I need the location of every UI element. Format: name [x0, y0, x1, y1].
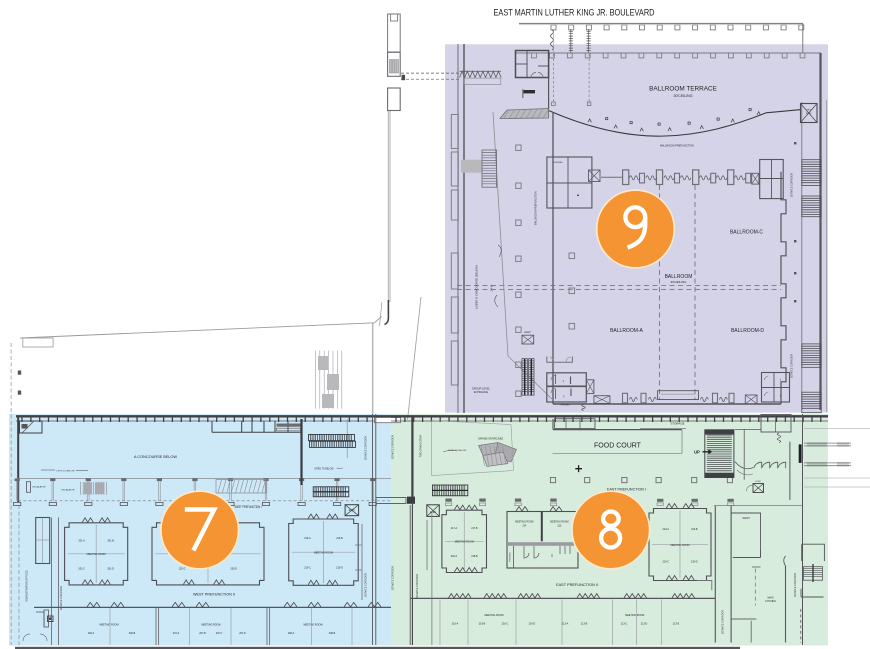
svg-text:BALLROOM-C: BALLROOM-C [730, 230, 763, 236]
svg-text:LIFTS TO BELOW: LIFTS TO BELOW [57, 471, 76, 473]
svg-text:213-B: 213-B [581, 623, 588, 626]
svg-text:SERVICE CORRIDOR: SERVICE CORRIDOR [416, 574, 419, 598]
svg-text:ELEV: ELEV [349, 509, 356, 512]
svg-text:GROUP LEVEL: GROUP LEVEL [472, 387, 491, 391]
svg-text:WASH: WASH [742, 517, 749, 520]
svg-text:MEETING ROOM: MEETING ROOM [314, 551, 333, 554]
svg-text:STORAGE: STORAGE [671, 422, 685, 425]
svg-text:213-E: 213-E [673, 623, 680, 626]
svg-text:30′CEILING: 30′CEILING [673, 94, 692, 98]
svg-text:BALLROOM PREFUNCTION: BALLROOM PREFUNCTION [660, 143, 694, 147]
svg-text:♀: ♀ [562, 394, 565, 399]
svg-text:A CONCOURSE BELOW: A CONCOURSE BELOW [134, 455, 178, 459]
svg-text:MEETING ROOM: MEETING ROOM [202, 624, 221, 627]
svg-text:219-C: 219-C [662, 561, 669, 564]
svg-text:MEETING ROOM: MEETING ROOM [550, 522, 568, 524]
svg-text:♀: ♀ [779, 393, 782, 398]
svg-text:KITCHEN: KITCHEN [765, 600, 776, 603]
svg-text:ESCALATOR: ESCALATOR [32, 486, 45, 489]
svg-text:♀: ♀ [550, 554, 555, 560]
svg-text:MEETING ROOM: MEETING ROOM [671, 544, 690, 547]
svg-text:UP: UP [694, 449, 700, 454]
svg-text:SERVICE CORRIDOR: SERVICE CORRIDOR [791, 173, 794, 197]
svg-text:202-D: 202-D [231, 567, 238, 570]
svg-text:210-A: 210-A [304, 537, 311, 540]
svg-text:ELEV: ELEV [430, 511, 437, 514]
svg-text:MEETING ROOM: MEETING ROOM [515, 522, 533, 524]
svg-text:216-A: 216-A [452, 623, 459, 626]
svg-text:WEST PREFUNCTION II: WEST PREFUNCTION II [193, 593, 235, 597]
svg-text:WEST PREFUNCTION I: WEST PREFUNCTION I [235, 505, 262, 509]
svg-text:ADMINISTRATION OFFICES: ADMINISTRATION OFFICES [26, 570, 29, 602]
svg-text:206-B: 206-B [129, 632, 136, 635]
svg-text:216-C: 216-C [502, 623, 509, 626]
svg-text:SERVICE CORRIDOR: SERVICE CORRIDOR [791, 354, 794, 378]
svg-text:201-A: 201-A [78, 539, 85, 542]
svg-text:MEETING ROOM: MEETING ROOM [455, 541, 474, 544]
svg-text:208-B: 208-B [329, 632, 336, 635]
svg-text:207-C: 207-C [216, 632, 223, 635]
svg-text:207-A: 207-A [173, 632, 180, 635]
svg-text:207-D: 207-D [239, 632, 246, 635]
svg-text:217-A: 217-A [451, 527, 458, 530]
svg-text:24′-8″: 24′-8″ [490, 284, 494, 291]
svg-text:210-C: 210-C [304, 567, 311, 570]
svg-text:GRAND STAIRCASE: GRAND STAIRCASE [478, 436, 503, 440]
svg-text:MEETING ROOM: MEETING ROOM [304, 624, 323, 627]
svg-text:SERVICE CORRIDOR: SERVICE CORRIDOR [722, 610, 725, 634]
svg-text:▲: ▲ [576, 193, 580, 197]
svg-text:FRT: FRT [807, 110, 812, 112]
svg-text:216-D: 216-D [529, 623, 536, 626]
svg-text:202-C: 202-C [179, 567, 186, 570]
svg-text:216-B: 216-B [479, 623, 486, 626]
svg-text:ENTRANCE: ENTRANCE [474, 390, 489, 394]
svg-text:BALLROOM: BALLROOM [665, 274, 693, 280]
svg-text:MEETING ROOM: MEETING ROOM [625, 614, 644, 617]
svg-text:ESCALATOR: ESCALATOR [61, 488, 74, 491]
svg-text:219-B: 219-B [691, 528, 698, 531]
svg-text:BALLROOM-D: BALLROOM-D [731, 328, 764, 334]
svg-text:OPEN TO BELOW: OPEN TO BELOW [314, 468, 334, 470]
svg-text:208-A: 208-A [288, 632, 295, 635]
svg-text:EAST MARTIN LUTHER KING JR. BO: EAST MARTIN LUTHER KING JR. BOULEVARD [494, 8, 655, 18]
svg-text:30′CEILING: 30′CEILING [671, 280, 688, 284]
svg-text:ELEV: ELEV [756, 481, 762, 483]
svg-text:SERVICE CORRIDOR: SERVICE CORRIDOR [391, 435, 394, 459]
svg-text:SERVICE CORRIDOR: SERVICE CORRIDOR [794, 573, 797, 597]
svg-text:206-A: 206-A [88, 632, 95, 635]
svg-text:PHONES: PHONES [553, 162, 563, 164]
svg-text:TWO GRAND STAIR: TWO GRAND STAIR [420, 435, 423, 458]
svg-text:217-B: 217-B [471, 527, 478, 530]
svg-text:207-B: 207-B [199, 632, 206, 635]
svg-text:PHONES: PHONES [560, 405, 570, 407]
svg-text:219-D: 219-D [691, 561, 698, 564]
svg-text:SERVICE CORRIDOR: SERVICE CORRIDOR [391, 566, 394, 590]
svg-text:BALLROOM-A: BALLROOM-A [610, 328, 643, 334]
svg-text:218-A: 218-A [451, 555, 458, 558]
svg-text:LOBBY D CONCOURSE (BELOW): LOBBY D CONCOURSE (BELOW) [475, 265, 479, 309]
svg-text:218-B: 218-B [471, 555, 478, 558]
svg-text:BALLROOM TERRACE: BALLROOM TERRACE [649, 86, 717, 93]
svg-text:SERVICE CORRIDOR: SERVICE CORRIDOR [60, 586, 63, 610]
svg-text:201-C: 201-C [78, 567, 85, 570]
svg-text:ELEV: ELEV [806, 113, 812, 115]
svg-text:EAST PREFUNCTION II: EAST PREFUNCTION II [556, 583, 598, 587]
svg-text:FOOD COURT: FOOD COURT [594, 443, 642, 450]
svg-text:MEETING ROOM: MEETING ROOM [485, 614, 504, 617]
svg-text:SERVICE CORRIDOR: SERVICE CORRIDOR [365, 573, 368, 597]
svg-text:210-D: 210-D [336, 567, 343, 570]
svg-text:ELEV: ELEV [524, 331, 531, 334]
svg-text:213-A: 213-A [562, 623, 569, 626]
svg-text:MEETING ROOM: MEETING ROOM [100, 624, 119, 627]
svg-text:♀: ♀ [779, 377, 782, 382]
svg-text:213-C: 213-C [621, 623, 628, 626]
svg-text:201-B: 201-B [107, 539, 114, 542]
svg-text:SERVICE CORRIDOR: SERVICE CORRIDOR [365, 436, 368, 460]
svg-text:210-B: 210-B [336, 537, 343, 540]
svg-text:219-A: 219-A [663, 528, 670, 531]
svg-text:♀: ♀ [562, 379, 565, 384]
svg-text:213-D: 213-D [641, 623, 648, 626]
svg-text:MEETING ROOM: MEETING ROOM [87, 553, 106, 556]
svg-text:201-D: 201-D [107, 567, 114, 570]
svg-text:BALLROOM PREFUNCTION: BALLROOM PREFUNCTION [534, 191, 538, 225]
svg-text:PHONES: PHONES [510, 552, 512, 562]
